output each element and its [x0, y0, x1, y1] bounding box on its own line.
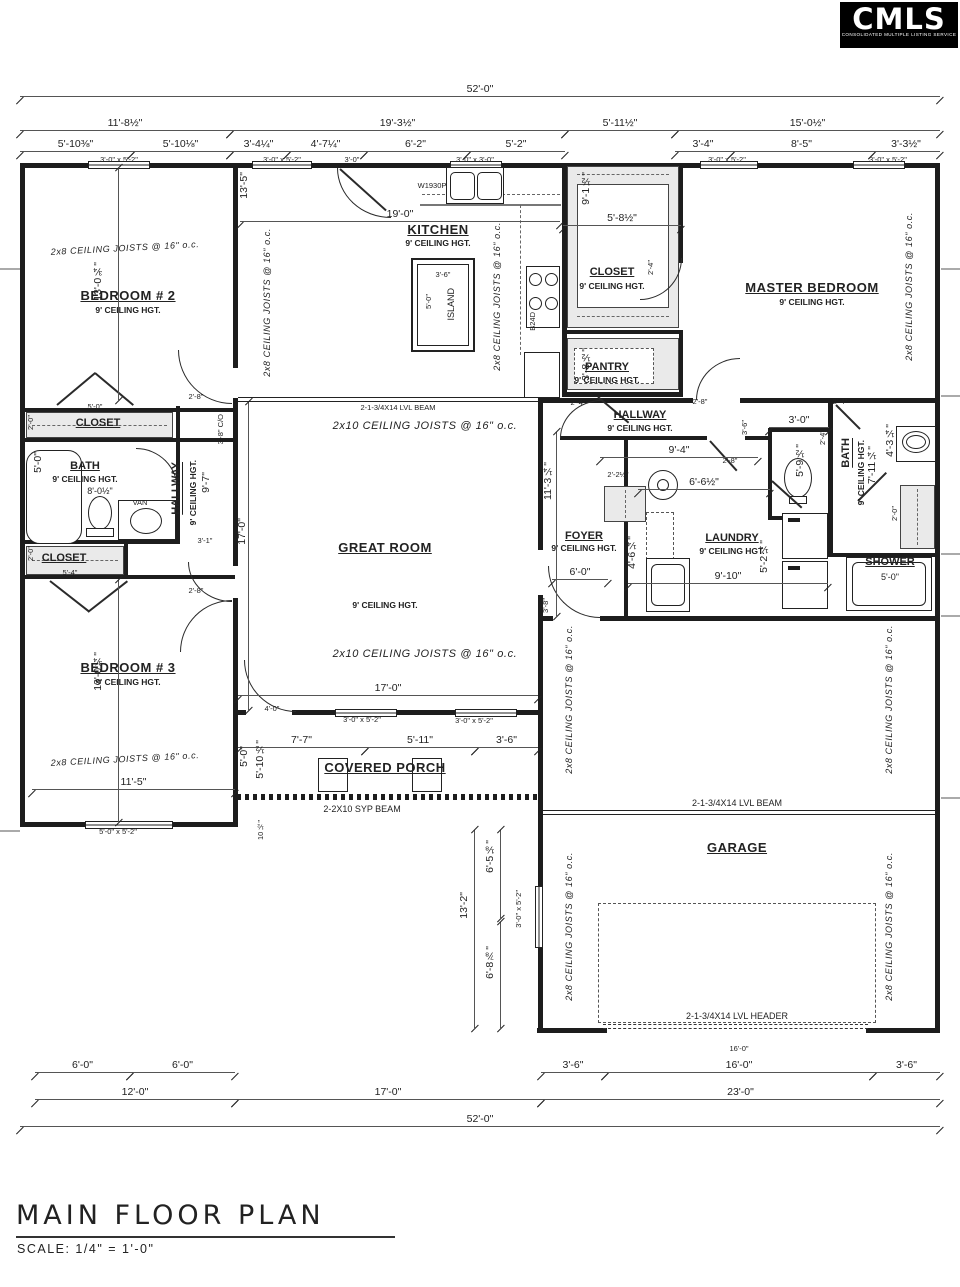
window-size-label: 3'-0" x 5'-2" [455, 716, 493, 725]
ceiling-height-label: 9' CEILING HGT. [551, 543, 616, 553]
dim-label: 5'-0" [88, 402, 103, 411]
dimension-line: 15'-0½" [675, 116, 940, 131]
dim-label: 12'-0" [35, 1086, 235, 1098]
cabinet-label: W1930P [418, 181, 447, 190]
header-annotation: 2-1-3/4X14 LVL HEADER [686, 1011, 788, 1021]
dim-label: 52'-0" [20, 1113, 940, 1125]
dimension-line: 5'-2" [467, 137, 565, 152]
ceiling-height-label: 9' CEILING HGT. [95, 305, 160, 315]
extension-line [0, 830, 20, 832]
door-arc [188, 562, 232, 602]
dimension-line: 23'-0" [541, 1085, 940, 1100]
island-label: ISLAND [446, 288, 456, 321]
dimension-line: 11'-8½" [20, 116, 230, 131]
dimension-line: 5'-10⅛" [131, 137, 230, 152]
wall [541, 398, 693, 403]
wall [600, 616, 938, 621]
joist-annotation: 2x10 CEILING JOISTS @ 16" o.c. [333, 648, 518, 660]
dimension-line [474, 830, 475, 1028]
lvl-beam-line [543, 810, 935, 815]
wall [22, 438, 235, 442]
garage-ceiling-dashed [598, 903, 876, 1023]
counter-edge [420, 204, 561, 206]
wall [292, 710, 337, 715]
door-size-label: 2'-4" [818, 430, 827, 445]
window-size-label: 3'-0" x 5'-2" [343, 715, 381, 724]
burner [545, 297, 558, 310]
dim-label: 3'-8" [541, 598, 550, 613]
ceiling-height-label: 9' CEILING HGT. [95, 677, 160, 687]
washer-handle [788, 518, 800, 522]
dim-label: 6'-5⅛" [484, 840, 496, 873]
burner [529, 297, 542, 310]
dimension-line: 8'-5" [731, 137, 872, 152]
wall [124, 542, 128, 577]
room-label-bath2: BATH [840, 438, 852, 468]
dimension-line: 3'-6" [475, 733, 538, 748]
joist-annotation: 2x8 CEILING JOISTS @ 16" o.c. [904, 212, 914, 361]
dimension-line: 3'-3½" [872, 137, 940, 152]
room-label-master: MASTER BEDROOM [745, 280, 878, 295]
dim-label: 17'-0" [236, 518, 248, 545]
dim-label: 3'-8½" [580, 348, 592, 381]
room-label-bath1: BATH [70, 460, 100, 472]
cmls-logo-text: CMLS [840, 2, 958, 36]
door-size-label: 2'-0" [890, 506, 899, 521]
dim-label: 3'-4¼" [230, 138, 287, 150]
door-size-label: 2'-8" [723, 456, 738, 465]
drawing-scale: SCALE: 1/4" = 1'-0" [17, 1242, 154, 1256]
window [535, 886, 543, 948]
dim-label: 3'-1" [198, 536, 213, 545]
wall [562, 392, 683, 397]
toilet [88, 496, 112, 530]
room-label-laundry: LAUNDRY [705, 532, 758, 544]
wall [233, 598, 238, 715]
joist-annotation: 2x8 CEILING JOISTS @ 16" o.c. [564, 625, 574, 774]
dimension-line: 19'-3½" [230, 116, 565, 131]
dim-label: 5'-10⅜" [20, 138, 131, 150]
ceiling-height-label: 9' CEILING HGT. [856, 440, 866, 505]
room-label-great-room: GREAT ROOM [338, 540, 432, 555]
dimension-line: 6'-2" [364, 137, 467, 152]
window [853, 161, 905, 169]
door-size-label: 2'-8" [189, 586, 204, 595]
dim-label: 3'-8" C/O [216, 414, 225, 444]
dim-label: 9'-10" [628, 570, 828, 582]
dim-label: 5'-4" [63, 568, 78, 577]
dim-label: 3'-3½" [872, 138, 940, 150]
room-label-hallway1: HALLWAY [170, 462, 182, 515]
wall [20, 163, 25, 827]
dimension-line: 3'-0" [769, 413, 829, 428]
dimension-line: 52'-0" [20, 1112, 940, 1127]
dim-label: 5'-11" [365, 734, 475, 746]
cmls-logo: CMLS CONSOLIDATED MULTIPLE LISTING SERVI… [840, 2, 958, 48]
dimension-line: 17'-0" [238, 681, 538, 696]
ceiling-height-label: 9' CEILING HGT. [405, 238, 470, 248]
dimension-line [500, 922, 501, 1028]
dimension-line: 3'-4¼" [230, 137, 287, 152]
ceiling-height-label: 9' CEILING HGT. [607, 423, 672, 433]
dim-label: 19'-3½" [230, 117, 565, 129]
ceiling-height-label: 9' CEILING HGT. [699, 546, 764, 556]
door-size-label: 2'-4" [646, 260, 655, 275]
dim-label: 3'-0" [769, 414, 829, 426]
window [700, 161, 758, 169]
wall [679, 330, 683, 396]
toilet-tank [86, 528, 114, 537]
dim-label: 11'-3¼" [542, 462, 554, 500]
dim-label: 4'-3¼" [884, 424, 896, 457]
lvl-beam-line [238, 397, 540, 402]
dim-label: 11'-5" [32, 776, 235, 788]
dim-label: 5'-0" [32, 452, 44, 473]
dimension-line: 3'-6" [541, 1058, 605, 1073]
dim-label: 3'-6" [436, 270, 451, 279]
ceiling-height-label: 9' CEILING HGT. [579, 281, 644, 291]
dim-label: 5'-8½" [563, 212, 681, 224]
dim-label: 11'-8½" [20, 117, 230, 129]
dim-label: 16'-0" [605, 1059, 873, 1071]
room-label-hallway2: HALLWAY [614, 409, 667, 421]
dim-label: 8'-5" [731, 138, 872, 150]
dimension-line: 12'-0" [35, 1085, 235, 1100]
dim-label: 6'-0" [552, 566, 608, 578]
laundry-counter [646, 512, 674, 560]
dim-label: 17'-0" [235, 1086, 541, 1098]
vanity-sink [130, 508, 162, 534]
dim-label: 2'-0" [26, 546, 35, 561]
porch-beam-dotted-line [237, 794, 540, 800]
extension-line [941, 797, 960, 799]
dim-label: 52'-0" [20, 83, 940, 95]
dim-label: 8'-0½" [87, 486, 112, 496]
bifold-door-leaf [49, 580, 90, 612]
dim-label: 6'-6½" [638, 476, 770, 488]
closet-rod-line [625, 490, 626, 518]
door-size-label: 2'-8" [693, 397, 708, 406]
room-label-shower: SHOWER [865, 556, 915, 568]
dim-label: 2'-2½" [607, 470, 628, 479]
room-label-porch: COVERED PORCH [324, 760, 445, 775]
floor-plan-sheet: CMLS CONSOLIDATED MULTIPLE LISTING SERVI… [0, 0, 960, 1287]
extension-line [941, 553, 960, 555]
lvl-header-line [603, 1024, 868, 1029]
fixture-label: VAN [133, 498, 148, 507]
dim-label: 3'-6" [873, 1059, 940, 1071]
dim-label: 5'-0" [238, 746, 250, 767]
joist-annotation: 2x8 CEILING JOISTS @ 16" o.c. [262, 228, 272, 377]
window-size-label: 5'-0" x 5'-2" [99, 827, 137, 836]
dim-label: 13'-0¾" [92, 262, 104, 301]
room-label-closet2: CLOSET [42, 552, 87, 564]
dim-label: 9'-7" [200, 472, 212, 493]
dim-label: 15'-0½" [675, 117, 940, 129]
dim-label: 5'-10⅛" [131, 138, 230, 150]
wall [233, 712, 238, 825]
dimension-line: 5'-11" [365, 733, 475, 748]
burner [529, 273, 542, 286]
door-size-label: 2'-8" [189, 392, 204, 401]
joist-annotation: 2x10 CEILING JOISTS @ 16" o.c. [333, 420, 518, 432]
dim-label: 3'-6" [541, 1059, 605, 1071]
dim-label: 9'-4" [600, 444, 758, 456]
dimension-line: 17'-0" [235, 1085, 541, 1100]
joist-annotation: 2x8 CEILING JOISTS @ 16" o.c. [50, 239, 199, 257]
dim-label: 5'-10½" [254, 740, 266, 779]
joist-annotation: 2x8 CEILING JOISTS @ 16" o.c. [564, 852, 574, 1001]
dim-label: 17'-0" [238, 682, 538, 694]
sink-bowl [450, 172, 475, 200]
bifold-door-leaf [56, 372, 96, 406]
beam-annotation: 2-1-3/4X14 LVL BEAM [360, 403, 435, 412]
dimension-line [118, 168, 119, 400]
dimension-line: 4'-7¼" [287, 137, 364, 152]
room-label-closet1: CLOSET [76, 417, 121, 429]
dim-label: 6'-0" [35, 1059, 130, 1071]
window [252, 161, 312, 169]
door-size-label: 2'-4" [833, 397, 848, 406]
dim-label: 5'-2¼" [758, 540, 770, 573]
dimension-line: 3'-6" [873, 1058, 940, 1073]
dim-label: 7'-11¼" [866, 446, 878, 484]
ceiling-height-label: 9' CEILING HGT. [352, 600, 417, 610]
dim-label: 19'-0" [240, 208, 560, 220]
closet-rod-line [917, 489, 918, 545]
wall [866, 1028, 940, 1033]
dim-label: 9'-1½" [580, 172, 592, 205]
dim-label: 13'-5" [238, 172, 250, 199]
dim-label: 3'-6" [740, 420, 749, 435]
joist-annotation: 2x8 CEILING JOISTS @ 16" o.c. [50, 750, 199, 768]
door-arc [180, 600, 232, 652]
dimension-line: 9'-10" [628, 569, 828, 584]
window-size-label: 3'-0" x 5'-2" [514, 890, 523, 928]
dim-label: 13'-0¾" [92, 652, 104, 691]
beam-annotation: 2-2X10 SYP BEAM [323, 804, 400, 814]
extension-line [0, 268, 20, 270]
dim-label: 5'-0" [424, 294, 433, 309]
ceiling-height-label: 9' CEILING HGT. [779, 297, 844, 307]
door-arc [178, 350, 232, 404]
room-label-kitchen: KITCHEN [407, 222, 468, 237]
refrigerator [524, 352, 560, 398]
dimension-line: 6'-0" [130, 1058, 235, 1073]
joist-annotation: 2x8 CEILING JOISTS @ 16" o.c. [492, 222, 502, 371]
wall [624, 436, 628, 620]
dim-label: 5'-9½" [794, 444, 806, 477]
door-arc [696, 358, 740, 400]
dimension-line: 6'-0" [552, 565, 608, 580]
burner [545, 273, 558, 286]
dimension-line: 5'-8½" [563, 211, 681, 226]
wall [562, 330, 683, 334]
dim-label: 16'-0" [729, 1044, 748, 1053]
wall [517, 710, 540, 715]
dimension-line: 52'-0" [20, 82, 940, 97]
closet-rod-line [577, 316, 669, 317]
extension-line [941, 268, 960, 270]
ceiling-height-label: 9' CEILING HGT. [188, 460, 198, 525]
wall [768, 428, 772, 520]
wall [745, 436, 770, 440]
dim-label: 6'-0" [130, 1059, 235, 1071]
dimension-line [556, 432, 557, 616]
extension-line [941, 615, 960, 617]
dimension-line: 6'-6½" [638, 475, 770, 490]
room-label-garage: GARAGE [707, 840, 767, 855]
beam-annotation: 2-1-3/4X14 LVL BEAM [692, 798, 782, 808]
dim-label: 5'-0" [881, 572, 899, 582]
wall [397, 710, 457, 715]
dimension-line [500, 830, 501, 918]
dimension-line: 11'-5" [32, 775, 235, 790]
wall [935, 163, 940, 1033]
dim-label: 13'-2" [458, 892, 470, 919]
dimension-line: 5'-11½" [565, 116, 675, 131]
dim-label: 3'-4" [675, 138, 731, 150]
dim-label: 10½" [256, 820, 265, 840]
sink-bowl [477, 172, 502, 200]
door-size-label: 4'-0" [265, 704, 280, 713]
door-leaf [835, 404, 860, 429]
counter-dashed [520, 205, 521, 355]
room-label-foyer: FOYER [565, 530, 603, 542]
dimension-line: 6'-0" [35, 1058, 130, 1073]
wall [537, 1028, 607, 1033]
extension-line [941, 395, 960, 397]
dim-label: 5'-11½" [565, 117, 675, 129]
dimension-line: 5'-10⅜" [20, 137, 131, 152]
vanity-sink-inner [906, 435, 926, 449]
dimension-line: 19'-0" [240, 207, 560, 222]
shower-pan-inner [852, 562, 926, 606]
ceiling-height-label: 9' CEILING HGT. [52, 474, 117, 484]
dim-label: 3'-6" [475, 734, 538, 746]
door-size-label: 2'-4" [571, 398, 586, 407]
bifold-door-leaf [87, 580, 128, 612]
dim-label: 4'-6¼" [626, 536, 638, 569]
dim-label: 2'-0" [26, 415, 35, 430]
dim-label: 6'-2" [364, 138, 467, 150]
room-label-closet-master: CLOSET [590, 266, 635, 278]
cabinet-label: B24D [528, 312, 537, 331]
dimension-line [248, 402, 249, 710]
dim-label: 4'-7¼" [287, 138, 364, 150]
dim-label: 5'-2" [467, 138, 565, 150]
bifold-door-leaf [94, 372, 134, 406]
dim-label: 23'-0" [541, 1086, 940, 1098]
drawing-title: MAIN FLOOR PLAN [16, 1200, 395, 1238]
dim-label: 6'-8⅞" [484, 946, 496, 979]
joist-annotation: 2x8 CEILING JOISTS @ 16" o.c. [884, 852, 894, 1001]
dimension-line: 3'-4" [675, 137, 731, 152]
cmls-logo-tagline: CONSOLIDATED MULTIPLE LISTING SERVICE [840, 32, 958, 37]
dimension-line: 16'-0" [605, 1058, 873, 1073]
joist-annotation: 2x8 CEILING JOISTS @ 16" o.c. [884, 625, 894, 774]
